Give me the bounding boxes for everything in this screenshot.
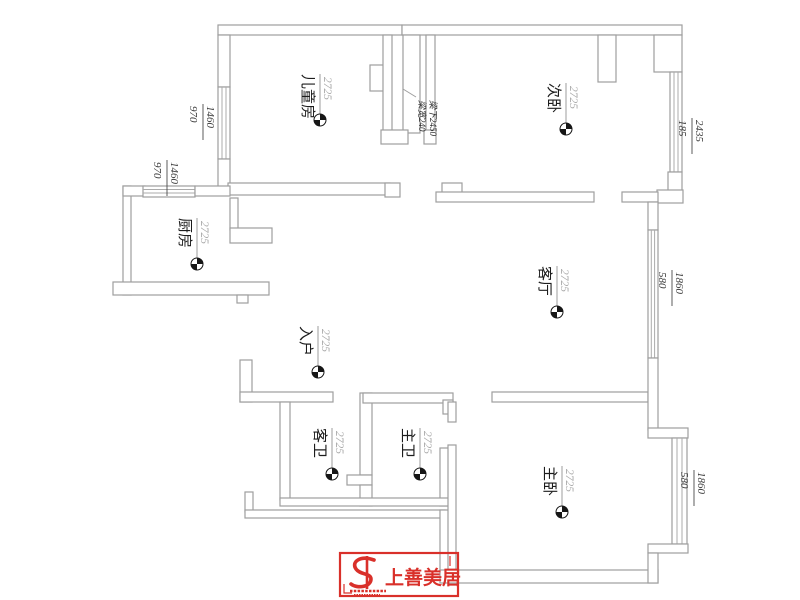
- room-label-master-bedroom: 2725 主卧: [541, 466, 575, 518]
- dimension-value: 1860: [695, 472, 707, 495]
- room-label-guest-bathroom: 2725 客卫: [311, 428, 345, 480]
- dimension-value: 580: [656, 272, 668, 289]
- room-label-entry: 2725 入户: [297, 326, 331, 378]
- dimension-children-left-window: 1460 970: [187, 104, 216, 140]
- datum-symbol: [551, 306, 563, 318]
- dimension-value: 1860: [673, 272, 685, 295]
- window-children-left: [218, 87, 230, 159]
- datum-symbol: [326, 468, 338, 480]
- room-name: 主卧: [541, 466, 558, 496]
- datum-symbol: [312, 366, 324, 378]
- floorplan-canvas: 2725 儿童房 2725 次卧 2725 厨房 2725 客厅 2725 入户: [0, 0, 800, 600]
- datum-symbol: [314, 114, 326, 126]
- datum-symbol: [560, 123, 572, 135]
- beam-note-line2: 梁下2450: [428, 100, 438, 137]
- elevation-value: 2725: [319, 329, 331, 352]
- logo-text: 上善美居: [385, 566, 461, 589]
- elevation-value: 2725: [567, 86, 579, 109]
- room-label-living-room: 2725 客厅: [536, 266, 570, 318]
- window-master-bay: [672, 438, 687, 544]
- elevation-value: 2725: [198, 221, 210, 244]
- room-label-master-bathroom: 2725 主卫: [399, 428, 433, 480]
- elevation-value: 2725: [421, 431, 433, 454]
- room-label-secondary-bedroom: 2725 次卧: [545, 83, 579, 135]
- window-kitchen-top: [143, 186, 195, 197]
- elevation-value: 2725: [333, 431, 345, 454]
- datum-symbol: [191, 258, 203, 270]
- room-label-children: 2725 儿童房: [299, 74, 333, 126]
- room-label-kitchen: 2725 厨房: [176, 218, 210, 270]
- logo-mark: [351, 556, 374, 589]
- datum-symbol: [556, 506, 568, 518]
- room-name: 儿童房: [299, 74, 317, 119]
- dimension-value: 970: [187, 106, 199, 123]
- floorplan-page: 2725 儿童房 2725 次卧 2725 厨房 2725 客厅 2725 入户: [0, 0, 800, 600]
- dimension-value: 2435: [693, 120, 705, 143]
- elevation-value: 2725: [563, 469, 575, 492]
- room-name: 次卧: [545, 83, 562, 113]
- room-name: 主卫: [399, 428, 416, 458]
- datum-symbol: [414, 468, 426, 480]
- dimension-value: 1460: [204, 106, 216, 129]
- dimension-value: 185: [676, 120, 688, 137]
- room-name: 入户: [297, 326, 314, 356]
- dimension-living-right-window: 1860 580: [656, 270, 685, 306]
- room-name: 客厅: [536, 266, 553, 296]
- window-living-right: [648, 230, 658, 358]
- elevation-value: 2725: [558, 269, 570, 292]
- beam-note-line1: 梁宽240: [417, 100, 427, 132]
- dimension-value: 970: [151, 162, 163, 179]
- dimension-value: 1460: [168, 162, 180, 185]
- dimension-value: 580: [678, 472, 690, 489]
- room-name: 厨房: [176, 218, 193, 248]
- elevation-value: 2725: [321, 77, 333, 100]
- room-name: 客卫: [311, 428, 328, 458]
